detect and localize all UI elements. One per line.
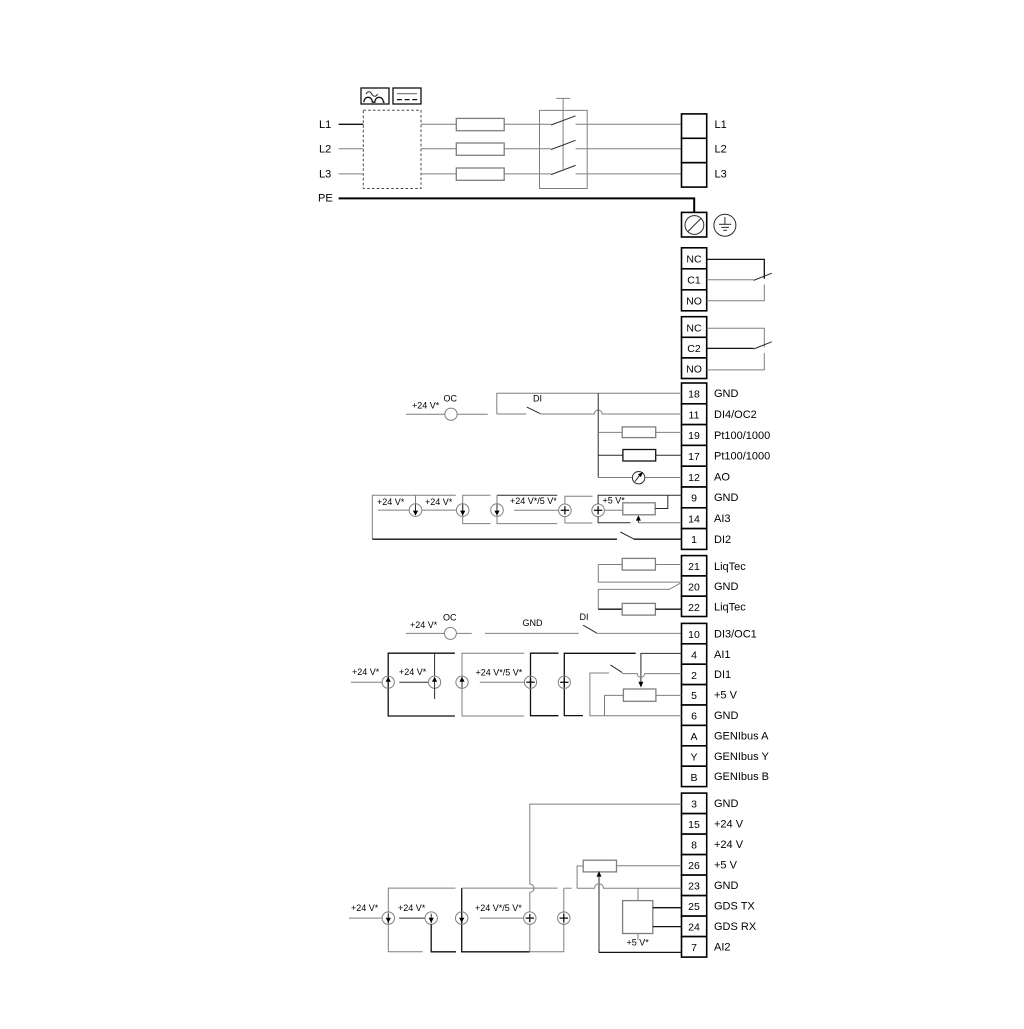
- svg-text:DI3/OC1: DI3/OC1: [714, 628, 757, 640]
- svg-text:Pt100/1000: Pt100/1000: [714, 430, 770, 442]
- svg-text:GDS TX: GDS TX: [714, 901, 755, 913]
- svg-text:17: 17: [688, 451, 700, 463]
- svg-text:23: 23: [688, 881, 700, 893]
- svg-text:DI: DI: [580, 612, 589, 622]
- svg-text:11: 11: [689, 409, 700, 421]
- svg-text:A: A: [690, 731, 697, 743]
- svg-text:AO: AO: [714, 471, 730, 483]
- svg-text:+24 V*: +24 V*: [398, 903, 426, 913]
- svg-text:GND: GND: [714, 798, 739, 810]
- svg-text:+24 V*/5 V*: +24 V*/5 V*: [510, 496, 557, 506]
- svg-text:AI2: AI2: [714, 942, 731, 954]
- svg-text:L2: L2: [715, 144, 727, 156]
- svg-text:NO: NO: [686, 364, 702, 376]
- svg-text:+5 V: +5 V: [714, 690, 738, 702]
- svg-text:DI4/OC2: DI4/OC2: [714, 409, 757, 421]
- svg-text:+5 V*: +5 V*: [603, 496, 626, 506]
- svg-text:15: 15: [688, 819, 700, 831]
- svg-text:25: 25: [688, 901, 700, 913]
- svg-text:PE: PE: [318, 193, 333, 205]
- svg-text:GENIbus B: GENIbus B: [714, 771, 769, 783]
- svg-text:5: 5: [691, 690, 697, 702]
- svg-text:12: 12: [688, 472, 700, 484]
- svg-text:DI1: DI1: [714, 669, 731, 681]
- svg-text:C2: C2: [687, 343, 701, 355]
- svg-text:+5 V: +5 V: [714, 860, 738, 872]
- svg-text:+24 V*: +24 V*: [352, 667, 380, 677]
- svg-text:L1: L1: [319, 119, 331, 131]
- svg-text:2: 2: [691, 670, 697, 682]
- svg-text:OC: OC: [443, 613, 457, 623]
- svg-text:+24 V: +24 V: [714, 819, 744, 831]
- svg-text:OC: OC: [444, 394, 458, 404]
- svg-text:B: B: [690, 772, 697, 784]
- svg-text:Y: Y: [690, 751, 697, 763]
- svg-text:1: 1: [691, 534, 697, 546]
- svg-text:DI: DI: [533, 394, 542, 404]
- svg-text:24: 24: [688, 922, 700, 934]
- svg-text:GND: GND: [523, 618, 544, 628]
- svg-text:4: 4: [691, 649, 697, 661]
- svg-text:NO: NO: [686, 296, 702, 308]
- svg-text:+24 V*: +24 V*: [412, 401, 440, 411]
- svg-text:C1: C1: [687, 275, 701, 287]
- svg-text:+24 V: +24 V: [714, 839, 744, 851]
- svg-text:26: 26: [688, 860, 700, 872]
- svg-text:GND: GND: [714, 492, 739, 504]
- svg-text:9: 9: [691, 493, 697, 505]
- svg-text:22: 22: [688, 602, 700, 614]
- svg-text:NC: NC: [686, 254, 702, 266]
- svg-text:LiqTec: LiqTec: [714, 561, 746, 573]
- svg-text:AI1: AI1: [714, 649, 731, 661]
- svg-text:GND: GND: [714, 710, 739, 722]
- svg-text:GND: GND: [714, 880, 739, 892]
- svg-text:GND: GND: [714, 581, 739, 593]
- svg-text:+24 V*/5 V*: +24 V*/5 V*: [476, 668, 523, 678]
- svg-text:+24 V*/5 V*: +24 V*/5 V*: [475, 903, 522, 913]
- svg-text:+24 V*: +24 V*: [351, 903, 379, 913]
- svg-text:20: 20: [688, 582, 700, 594]
- svg-text:+24 V*: +24 V*: [377, 497, 405, 507]
- svg-text:L3: L3: [319, 169, 331, 181]
- svg-text:8: 8: [691, 840, 697, 852]
- svg-text:10: 10: [688, 629, 700, 641]
- svg-text:L3: L3: [715, 169, 727, 181]
- svg-text:AI3: AI3: [714, 513, 731, 525]
- svg-text:+24 V*: +24 V*: [410, 620, 438, 630]
- svg-text:19: 19: [688, 430, 700, 442]
- svg-text:+5 V*: +5 V*: [627, 937, 650, 947]
- svg-text:L2: L2: [319, 144, 331, 156]
- svg-text:GDS RX: GDS RX: [714, 921, 757, 933]
- svg-text:GENIbus Y: GENIbus Y: [714, 751, 769, 763]
- svg-text:6: 6: [691, 711, 697, 723]
- svg-text:GND: GND: [714, 388, 739, 400]
- svg-text:21: 21: [688, 561, 700, 573]
- svg-text:18: 18: [688, 389, 700, 401]
- svg-text:7: 7: [691, 942, 697, 954]
- svg-text:GENIbus A: GENIbus A: [714, 730, 769, 742]
- svg-text:DI2: DI2: [714, 534, 731, 546]
- svg-text:+24 V*: +24 V*: [425, 497, 453, 507]
- svg-text:LiqTec: LiqTec: [714, 601, 746, 613]
- svg-text:L1: L1: [715, 119, 727, 131]
- svg-text:14: 14: [688, 513, 700, 525]
- svg-text:3: 3: [691, 799, 697, 811]
- svg-text:Pt100/1000: Pt100/1000: [714, 451, 770, 463]
- svg-text:+24 V*: +24 V*: [399, 667, 427, 677]
- svg-text:NC: NC: [686, 322, 702, 334]
